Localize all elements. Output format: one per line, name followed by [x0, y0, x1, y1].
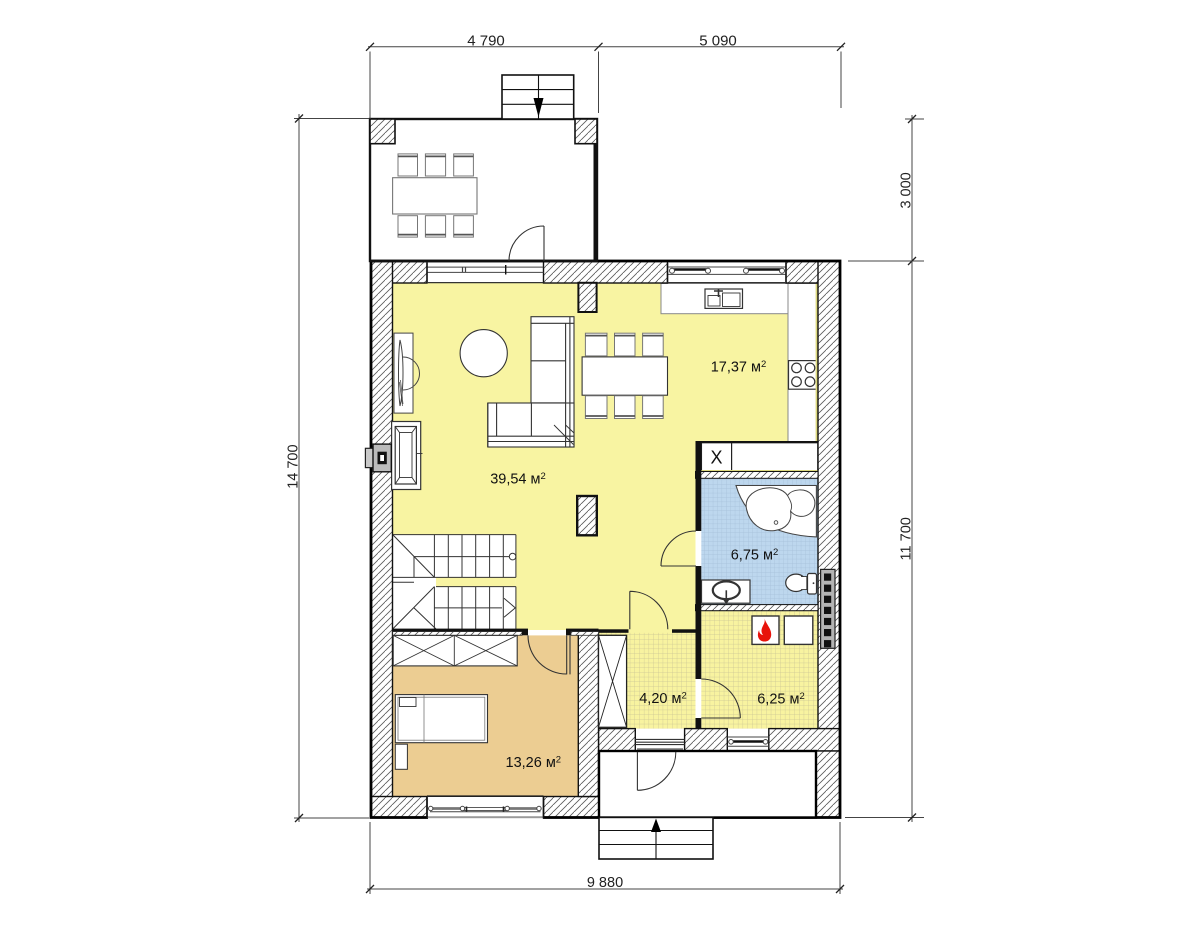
svg-text:6,75 м2: 6,75 м2 [731, 547, 779, 564]
svg-text:11 700: 11 700 [899, 517, 915, 560]
svg-text:9 880: 9 880 [587, 875, 623, 891]
svg-text:6,25 м2: 6,25 м2 [757, 691, 805, 708]
svg-text:4,20 м2: 4,20 м2 [639, 691, 687, 708]
svg-text:13,26 м2: 13,26 м2 [506, 754, 562, 771]
svg-text:14 700: 14 700 [286, 444, 302, 488]
svg-text:3 000: 3 000 [899, 172, 915, 208]
svg-text:X: X [710, 448, 722, 468]
svg-text:4 790: 4 790 [467, 32, 505, 49]
svg-text:17,37 м2: 17,37 м2 [711, 359, 767, 376]
svg-text:39,54 м2: 39,54 м2 [490, 471, 546, 488]
svg-text:5 090: 5 090 [699, 32, 737, 49]
